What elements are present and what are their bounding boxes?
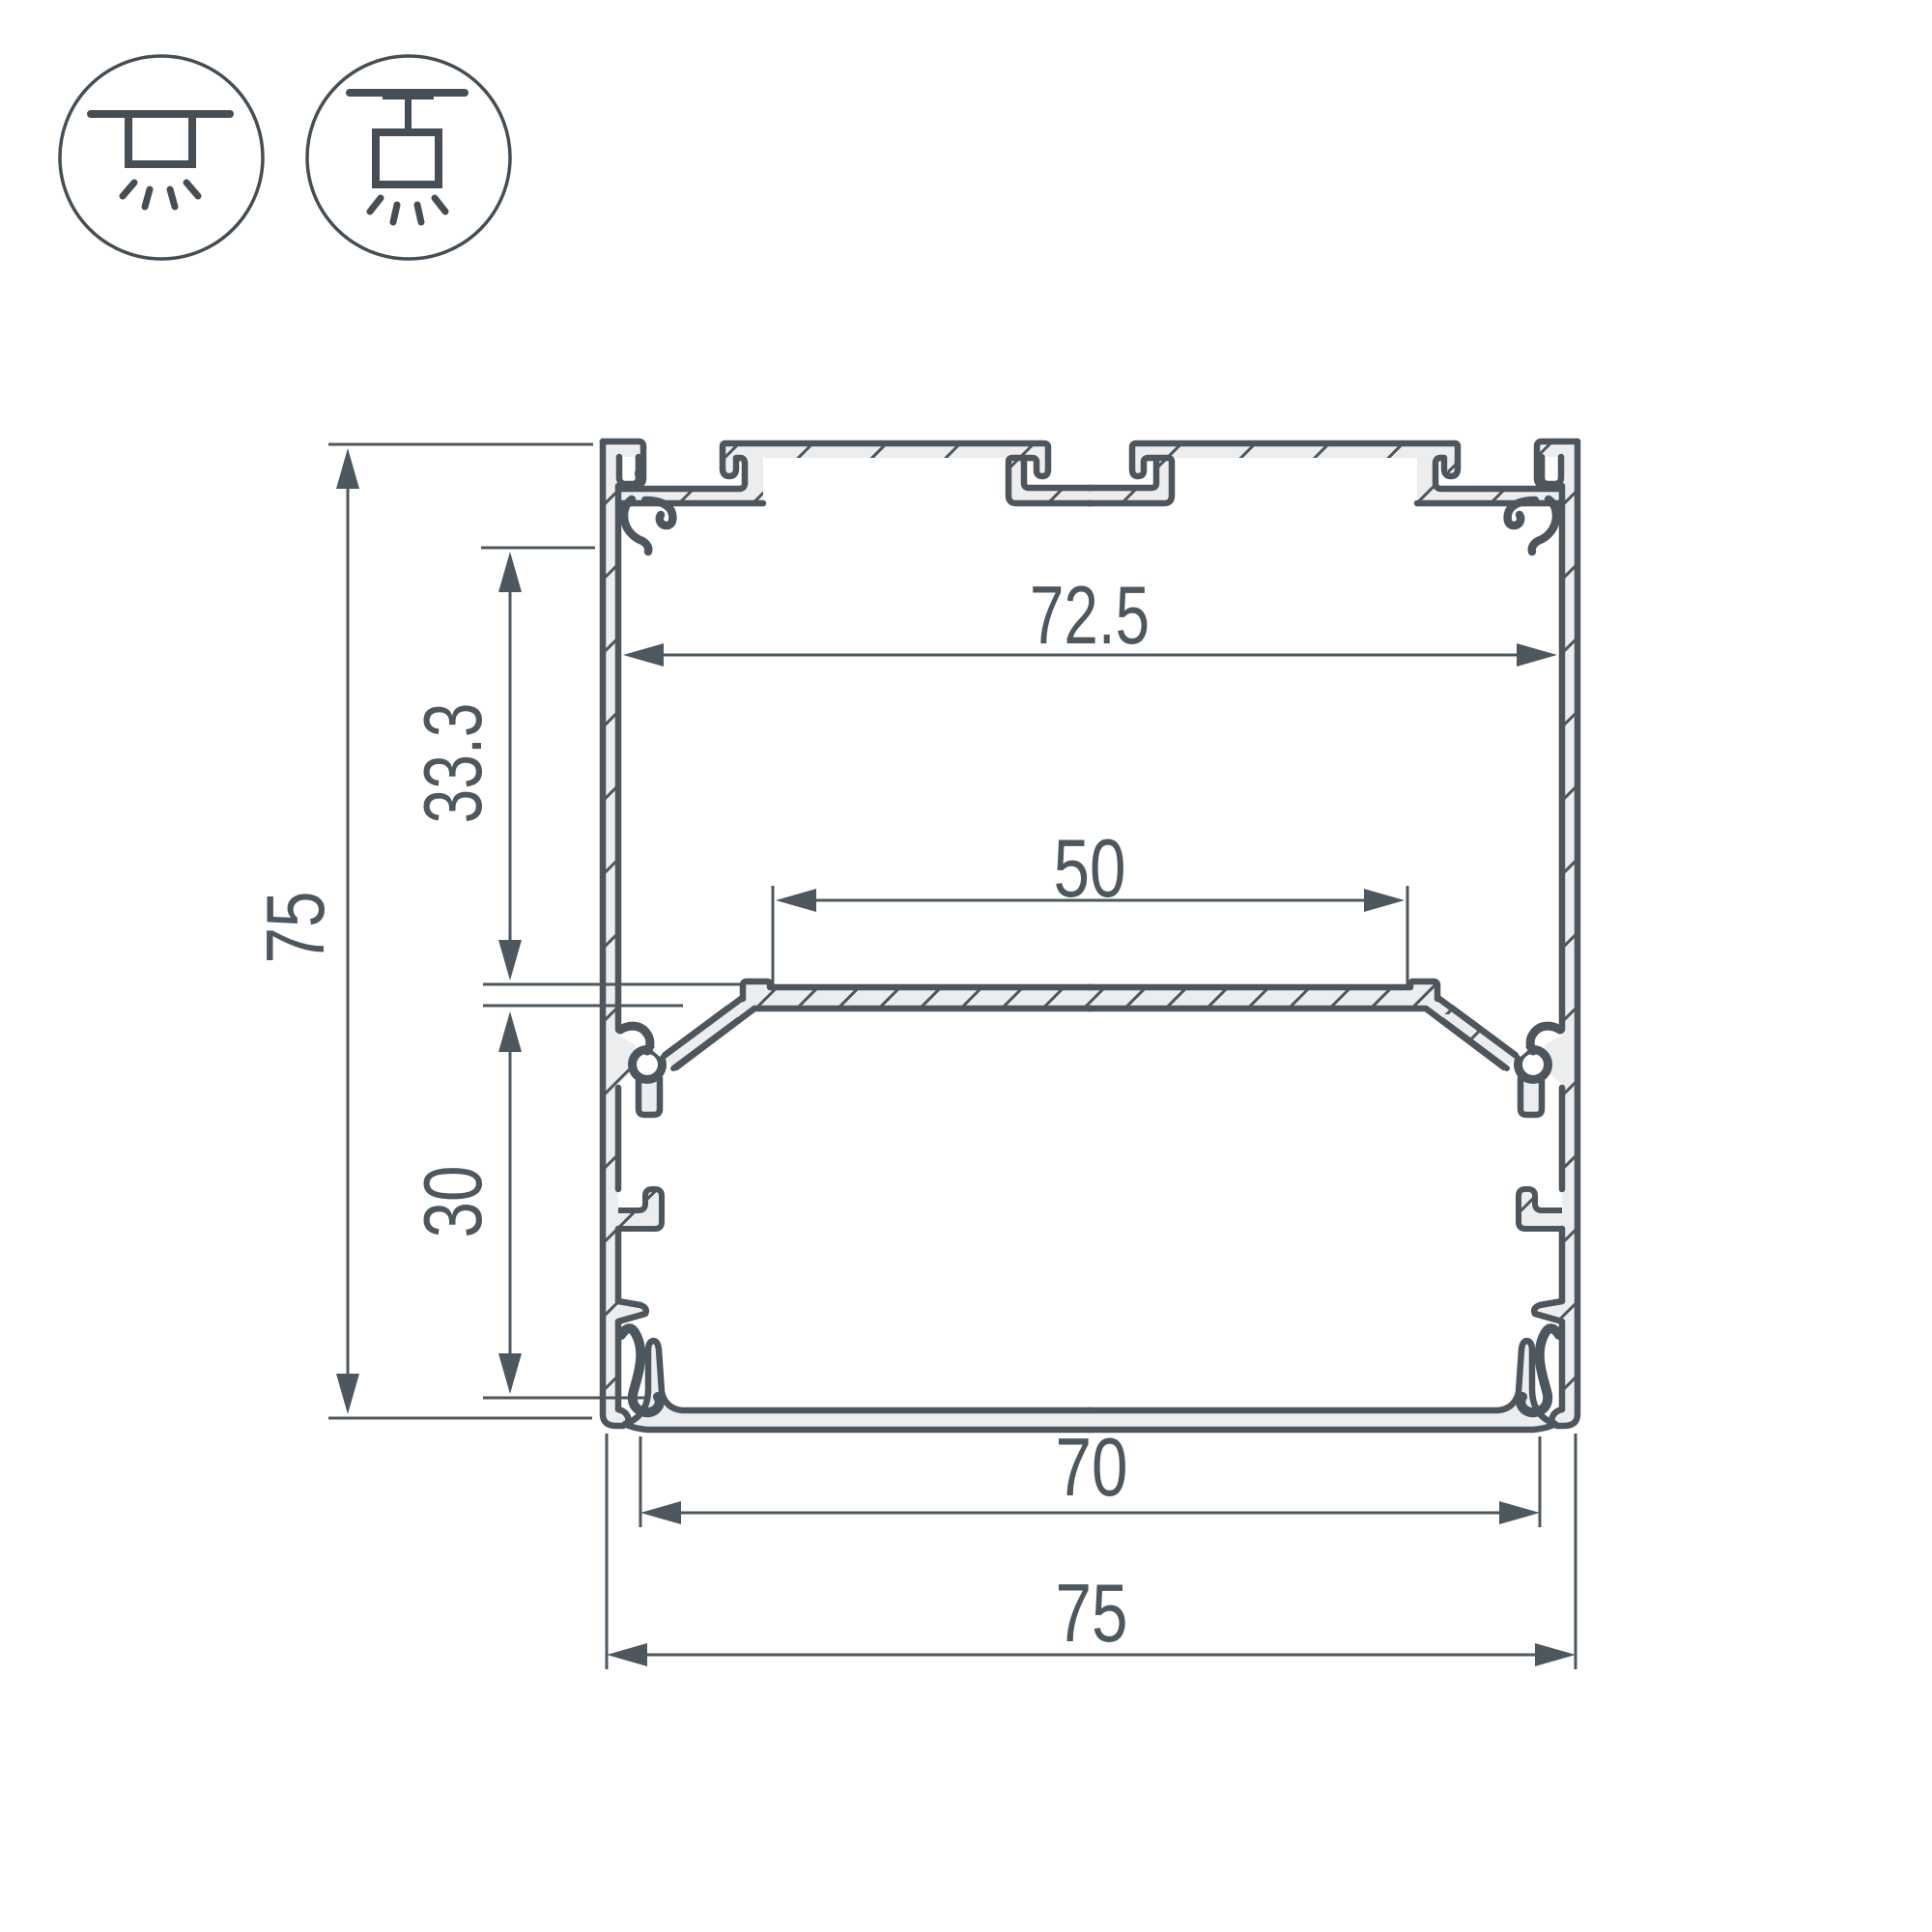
- svg-text:75: 75: [1056, 1568, 1128, 1660]
- svg-text:75: 75: [250, 892, 342, 964]
- svg-text:30: 30: [408, 1166, 499, 1238]
- svg-text:33.3: 33.3: [408, 703, 499, 824]
- svg-text:72.5: 72.5: [1030, 570, 1150, 662]
- svg-text:50: 50: [1054, 823, 1126, 915]
- svg-text:70: 70: [1056, 1422, 1128, 1514]
